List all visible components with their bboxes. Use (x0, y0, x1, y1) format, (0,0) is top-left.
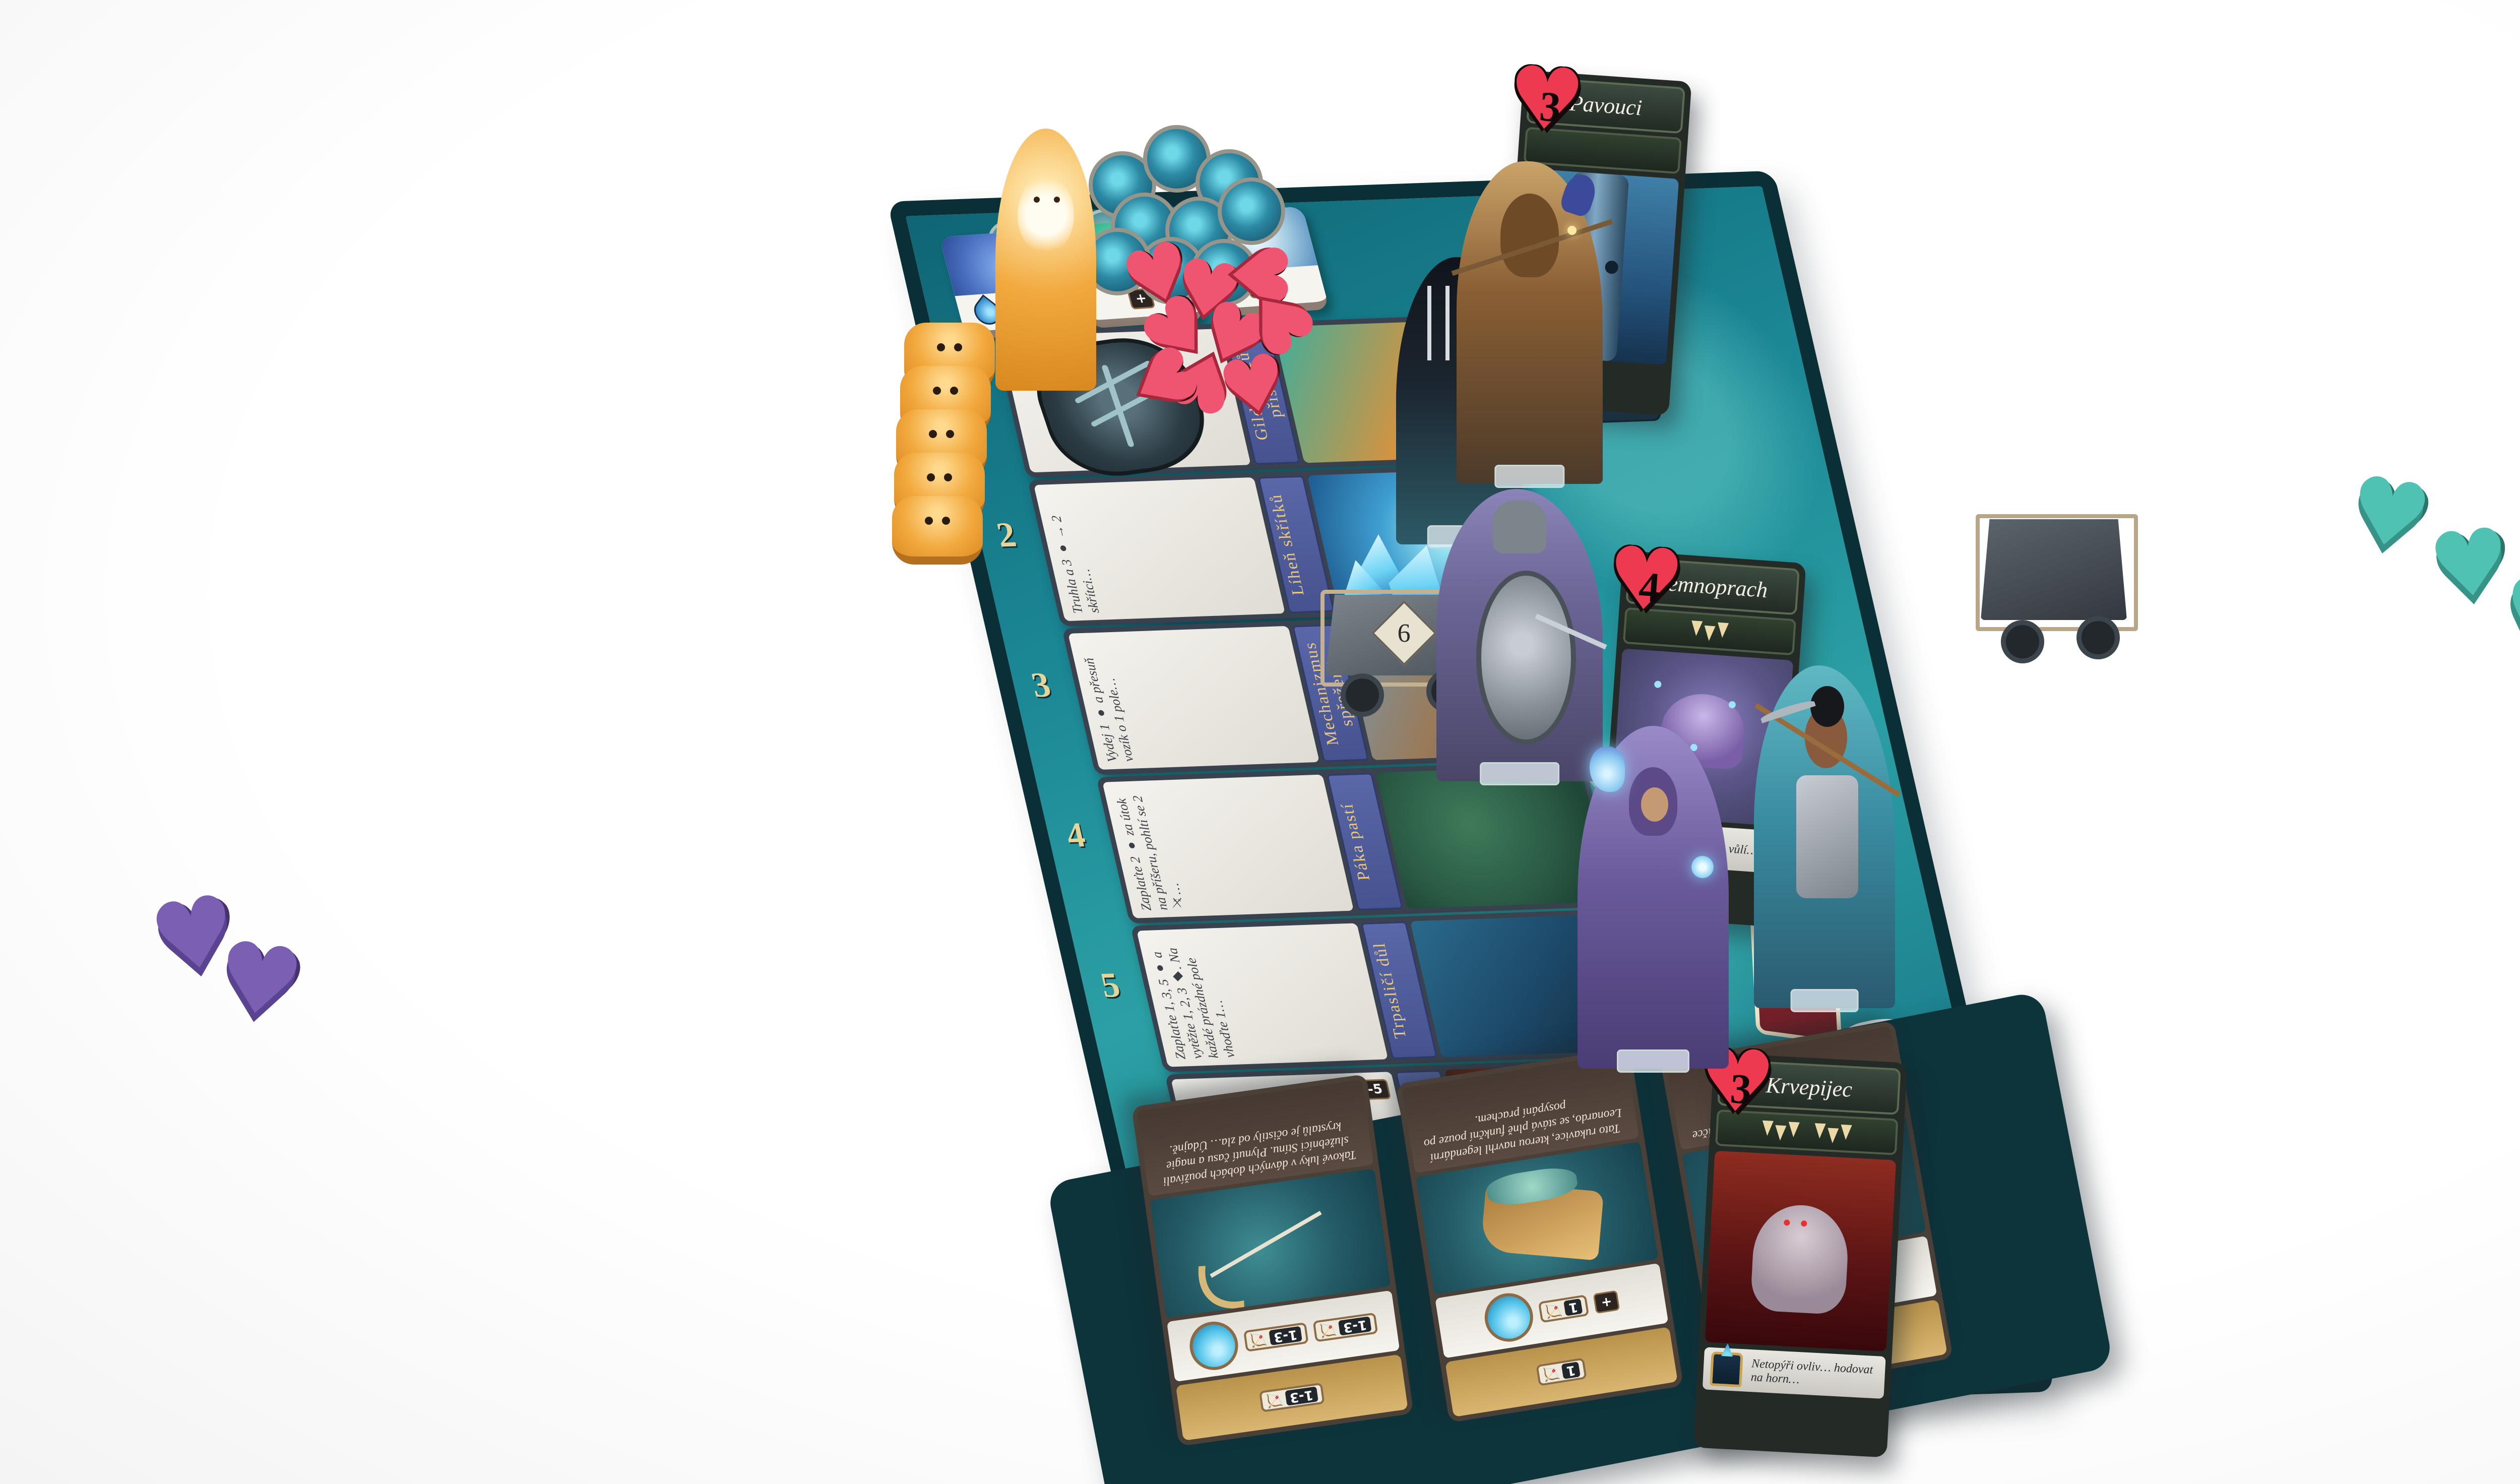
bow-value-chip: 1🏹 (1536, 1357, 1587, 1386)
row-number-2: 2 (993, 515, 1020, 556)
bow-value-chip: 1-3🏹 (1243, 1322, 1309, 1352)
location-card-row5: Zaplaťte 1, 3, 5 ● a vytěžte 1, 2, 3 ◆. … (1130, 909, 1653, 1072)
hair-bun-icon (1810, 686, 1844, 727)
cart-frame (1976, 514, 2138, 631)
fang-icon (1689, 621, 1730, 642)
drop-icon (1186, 1319, 1241, 1373)
hood-icon (1500, 194, 1559, 277)
row-number-3: 3 (1028, 665, 1054, 706)
monster-card-krvepijec: 3 Krvepijec Netopýři ovliv… hodovat na h… (1693, 1053, 1908, 1457)
creature-icon (1750, 1203, 1850, 1315)
standee-base (1494, 465, 1564, 488)
standee-base (1617, 1049, 1689, 1073)
standee-base (1791, 989, 1859, 1012)
glow-dots (1654, 681, 1662, 689)
item-card-bow: 1-3🏹 1-3🏹 1-3🏹 Takové luky v dávných dob… (1131, 1074, 1414, 1447)
ranger-standee (1457, 161, 1603, 484)
teal-round-token (1218, 177, 1285, 245)
row-number-5: 5 (1097, 965, 1124, 1006)
location-art (1376, 766, 1612, 909)
chest-icon (1710, 1351, 1743, 1387)
three-swords-icon (1427, 286, 1431, 360)
bow-value-chip: 1-3🏹 (1259, 1383, 1325, 1412)
tabletop-scene: + 1-6 1 2 3 4 5 6 7 Gilda l (0, 0, 2520, 1484)
cart-wheel (1341, 673, 1384, 717)
krvepijec-art (1705, 1151, 1896, 1351)
lantern-glow (1567, 226, 1577, 235)
purple-heart-token (211, 927, 309, 1034)
miner-standee (1754, 665, 1895, 1008)
face-icon (1641, 787, 1668, 822)
gnome-face-icon (1018, 176, 1074, 255)
bow-value-chip: 1🏹 (1538, 1294, 1590, 1323)
helmet-icon (1493, 501, 1546, 553)
drop-icon (1481, 1290, 1537, 1345)
bow-value-chip: 1-3🏹 (1313, 1313, 1378, 1342)
gnome-tile-stack (892, 222, 983, 565)
health-badge: 3 (1504, 59, 1596, 150)
mage-standee (1578, 726, 1729, 1069)
cart-wheel (2001, 620, 2044, 663)
teal-heart-token (2342, 462, 2437, 566)
armor-icon (1796, 775, 1858, 899)
round-shield-icon (1476, 571, 1576, 745)
fang-icon (1813, 1123, 1853, 1144)
row-number-4: 4 (1062, 815, 1089, 856)
gnome-standee (995, 129, 1096, 391)
empty-cart (1976, 499, 2137, 675)
gnome-tile (892, 496, 983, 565)
spirit-flame-icon (1590, 747, 1625, 792)
standee-base (1480, 762, 1559, 785)
card-plus-icon: + (1593, 1290, 1620, 1314)
teal-heart-token (2425, 515, 2515, 614)
cart-wheel (2076, 616, 2120, 659)
